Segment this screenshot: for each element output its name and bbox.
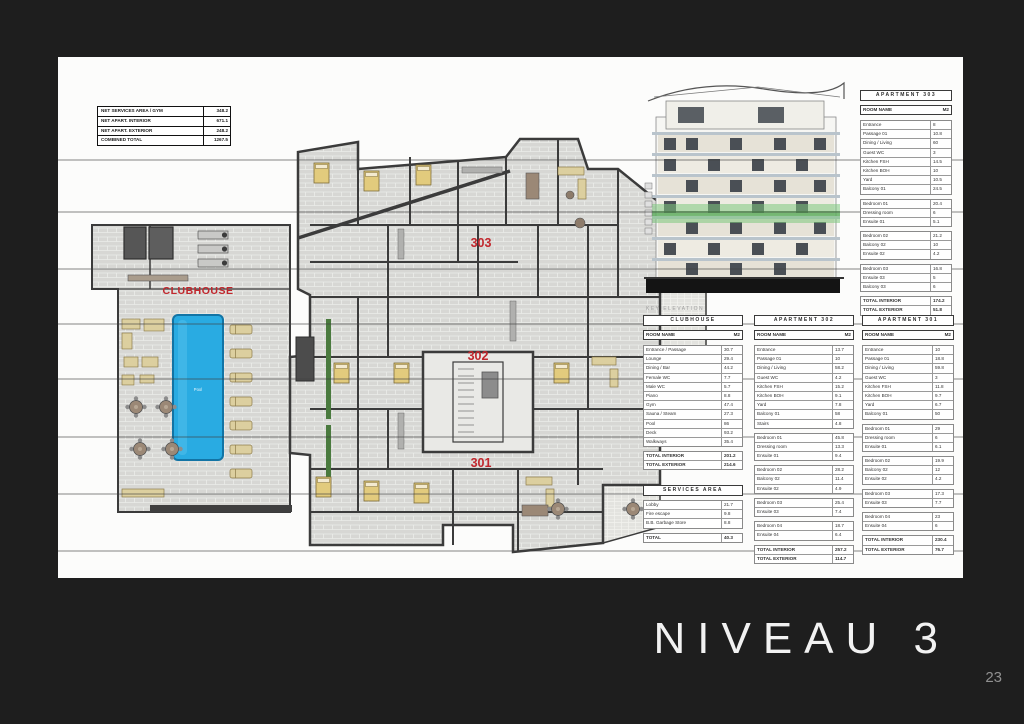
table-row: Bedroom 0316.8 [861, 265, 951, 274]
table-row: Bedroom 0228.2 [755, 466, 853, 475]
table-row: Balcony 0124.5 [861, 185, 951, 193]
table-row: Balcony 0211.4 [755, 475, 853, 484]
table-row: Pool86 [644, 420, 742, 429]
table-row: Entrance / Passage30.7 [644, 346, 742, 355]
area-table-apartment-303: APARTMENT 303ROOM NAMEM2Entrance8Passage… [860, 90, 952, 320]
table-row: Walkways35.4 [644, 438, 742, 446]
lift-shaft [296, 337, 314, 381]
table-row: Ensuite 015.1 [861, 218, 951, 226]
table-group: Bedroom 0219.9Balcony 0212Ensuite 024.2 [862, 456, 954, 485]
table-row: Lounge29.4 [644, 355, 742, 364]
table-column-headers: ROOM NAMEM2 [754, 330, 854, 340]
table-totals: TOTAL INTERIOR257.2TOTAL EXTERIOR114.7 [754, 545, 854, 564]
table-totals: TOTAL INTERIOR201.2TOTAL EXTERIOR214.6 [643, 451, 743, 470]
table-row: Ensuite 024.9 [755, 485, 853, 493]
table-row: Ensuite 037.4 [755, 508, 853, 516]
table-row: Entrance10 [863, 346, 953, 355]
summary-row: NET SERVICES AREA / GYM348.2 [98, 107, 230, 117]
table-group: Bedroom 0145.8Dressing room13.3Ensuite 0… [754, 433, 854, 462]
slide-title: NIVEAU 3 [653, 614, 950, 664]
table-row: Bedroom 0221.2 [861, 232, 951, 241]
table-row: Kitchen BOH9.7 [863, 392, 953, 401]
table-row: Guest WC3 [863, 374, 953, 383]
area-table-clubhouse: CLUBHOUSEROOM NAMEM2Entrance / Passage30… [643, 315, 743, 474]
table-group: Bedroom 0418.7Ensuite 046.4 [754, 521, 854, 540]
table-row: Balcony 0158 [755, 410, 853, 419]
table-row: Dining / Living59.8 [863, 364, 953, 373]
table-row: Dining / Bar44.2 [644, 364, 742, 373]
table-row: Bedroom 0120.4 [861, 200, 951, 209]
table-row: Female WC7.7 [644, 374, 742, 383]
table-row: Lobby21.7 [644, 501, 742, 510]
table-row: Entrance8 [861, 121, 951, 130]
table-row: TOTAL EXTERIOR51.8 [861, 306, 951, 314]
table-row: Bedroom 0317.3 [863, 490, 953, 499]
sauna-room [124, 227, 146, 259]
table-group: Entrance13.7Passage 0110Dining / Living5… [754, 345, 854, 429]
table-row: Balcony 0212 [863, 466, 953, 475]
table-column-headers: ROOM NAMEM2 [643, 330, 743, 340]
clubhouse-label: CLUBHOUSE [162, 285, 233, 297]
table-title: SERVICES AREA [643, 485, 743, 496]
table-row: Ensuite 016.1 [863, 443, 953, 451]
table-row: Dining / Living60 [861, 139, 951, 148]
table-row: Ensuite 019.4 [755, 452, 853, 460]
table-row: Bedroom 0145.8 [755, 434, 853, 443]
table-row: Yard10.5 [861, 176, 951, 185]
table-row: TOTAL INTERIOR257.2 [755, 546, 853, 555]
table-row: Dining / Living58.2 [755, 364, 853, 373]
drawing-sheet: Pool CLUBHOUSE [58, 57, 963, 578]
table-row: Kitchen BOH10 [861, 167, 951, 176]
table-row: Passage 0118.8 [863, 355, 953, 364]
table-row: Bedroom 0423 [863, 513, 953, 522]
planter-strip [326, 425, 331, 483]
table-row: Sauna / Steam27.3 [644, 410, 742, 419]
area-table-apartment-301: APARTMENT 301ROOM NAMEM2Entrance10Passag… [862, 315, 954, 559]
table-totals: TOTAL INTERIOR230.4TOTAL EXTERIOR76.7 [862, 535, 954, 554]
apartment-label-302: 302 [468, 349, 489, 363]
table-row: Stairs4.8 [755, 420, 853, 428]
table-row: B.B. Garbage Store8.8 [644, 519, 742, 527]
table-row: Guest WC4.2 [755, 374, 853, 383]
table-totals: TOTAL40.3 [643, 533, 743, 543]
table-row: Dressing room6 [863, 434, 953, 443]
table-row: TOTAL INTERIOR174.2 [861, 297, 951, 306]
table-row: Yard7.8 [755, 401, 853, 410]
table-title: APARTMENT 301 [862, 315, 954, 326]
summary-table: NET SERVICES AREA / GYM348.2NET APART. I… [97, 106, 231, 146]
table-title: APARTMENT 302 [754, 315, 854, 326]
table-column-headers: ROOM NAMEM2 [860, 105, 952, 115]
table-row: Ensuite 024.2 [861, 250, 951, 258]
table-row: Bedroom 0325.4 [755, 499, 853, 508]
apartment-label-301: 301 [471, 456, 492, 470]
elevation-drawing: KEY ELEVATION [644, 83, 844, 312]
table-row: Bedroom 0129 [863, 425, 953, 434]
table-row: Dressing room6 [861, 209, 951, 218]
table-group: Bedroom 0120.4Dressing room6Ensuite 015.… [860, 199, 952, 228]
pool-label: Pool [194, 387, 202, 392]
apartment-label-303: 303 [471, 236, 492, 250]
table-group: Bedroom 0129Dressing room6Ensuite 016.1 [862, 424, 954, 453]
table-title: CLUBHOUSE [643, 315, 743, 326]
table-row: Kitchen BOH9.1 [755, 392, 853, 401]
summary-row: COMBINED TOTAL1267.5 [98, 136, 230, 145]
table-row: Male WC5.7 [644, 383, 742, 392]
planter-strip [326, 319, 331, 419]
elevation-base [646, 279, 840, 293]
table-group: Bedroom 0316.8Ensuite 035Balcony 036 [860, 264, 952, 293]
table-row: Balcony 0210 [861, 241, 951, 250]
table-column-headers: ROOM NAMEM2 [862, 330, 954, 340]
table-row: Passage 0110 [755, 355, 853, 364]
area-table-services: SERVICES AREALobby21.7Fire escape9.8B.B.… [643, 485, 743, 547]
table-group: Bedroom 0423Ensuite 046 [862, 512, 954, 531]
table-row: Bedroom 0418.7 [755, 522, 853, 531]
table-row: Ensuite 037.7 [863, 499, 953, 507]
reception-counter [128, 275, 188, 281]
table-row: TOTAL EXTERIOR114.7 [755, 555, 853, 563]
table-row: Ensuite 046.4 [755, 531, 853, 539]
steam-room [149, 227, 173, 259]
summary-row: NET APART. INTERIOR671.1 [98, 117, 230, 127]
table-group: Lobby21.7Fire escape9.8B.B. Garbage Stor… [643, 500, 743, 529]
table-group: Entrance / Passage30.7Lounge29.4Dining /… [643, 345, 743, 447]
table-row: Ensuite 035 [861, 274, 951, 283]
area-table-apartment-302: APARTMENT 302ROOM NAMEM2Entrance13.7Pass… [754, 315, 854, 568]
table-row: Kitchen FSH14.5 [861, 158, 951, 167]
deck-edge-wall [150, 505, 292, 512]
table-row: Kitchen FSH11.8 [863, 383, 953, 392]
key-elevation-caption: KEY ELEVATION [646, 306, 704, 312]
table-totals: TOTAL INTERIOR174.2TOTAL EXTERIOR51.8 [860, 296, 952, 315]
table-row: Guest WC3 [861, 149, 951, 158]
table-row: TOTAL INTERIOR201.2 [644, 452, 742, 461]
table-group: Bedroom 0221.2Balcony 0210Ensuite 024.2 [860, 231, 952, 260]
table-group: Entrance10Passage 0118.8Dining / Living5… [862, 345, 954, 420]
table-row: Fire escape9.8 [644, 510, 742, 519]
table-row: Ensuite 046 [863, 522, 953, 530]
table-row: Dressing room13.3 [755, 443, 853, 452]
table-row: Entrance13.7 [755, 346, 853, 355]
table-title: APARTMENT 303 [860, 90, 952, 101]
slide-background: { "page": { "background": "#1e1e1e", "ti… [0, 0, 1024, 724]
summary-row: NET APART. EXTERIOR248.2 [98, 127, 230, 137]
table-row: Passage 0110.8 [861, 130, 951, 139]
table-row: Balcony 0150 [863, 410, 953, 418]
table-row: TOTAL EXTERIOR76.7 [863, 546, 953, 554]
page-number: 23 [985, 669, 1002, 686]
table-row: TOTAL40.3 [644, 534, 742, 542]
table-row: TOTAL EXTERIOR214.6 [644, 461, 742, 469]
table-row: Kitchen FSH15.2 [755, 383, 853, 392]
table-row: Deck93.2 [644, 429, 742, 438]
clubhouse-plan: Pool CLUBHOUSE [92, 225, 310, 512]
table-row: Piano8.8 [644, 392, 742, 401]
table-group: Entrance8Passage 0110.8Dining / Living60… [860, 120, 952, 195]
table-row: Balcony 036 [861, 283, 951, 291]
table-row: Yard6.7 [863, 401, 953, 410]
table-group: Bedroom 0325.4Ensuite 037.4 [754, 498, 854, 517]
table-row: Ensuite 024.2 [863, 475, 953, 483]
table-row: Bedroom 0219.9 [863, 457, 953, 466]
table-row: TOTAL INTERIOR230.4 [863, 536, 953, 545]
table-group: Bedroom 0228.2Balcony 0211.4Ensuite 024.… [754, 465, 854, 494]
table-row: Gym47.4 [644, 401, 742, 410]
table-group: Bedroom 0317.3Ensuite 037.7 [862, 489, 954, 508]
